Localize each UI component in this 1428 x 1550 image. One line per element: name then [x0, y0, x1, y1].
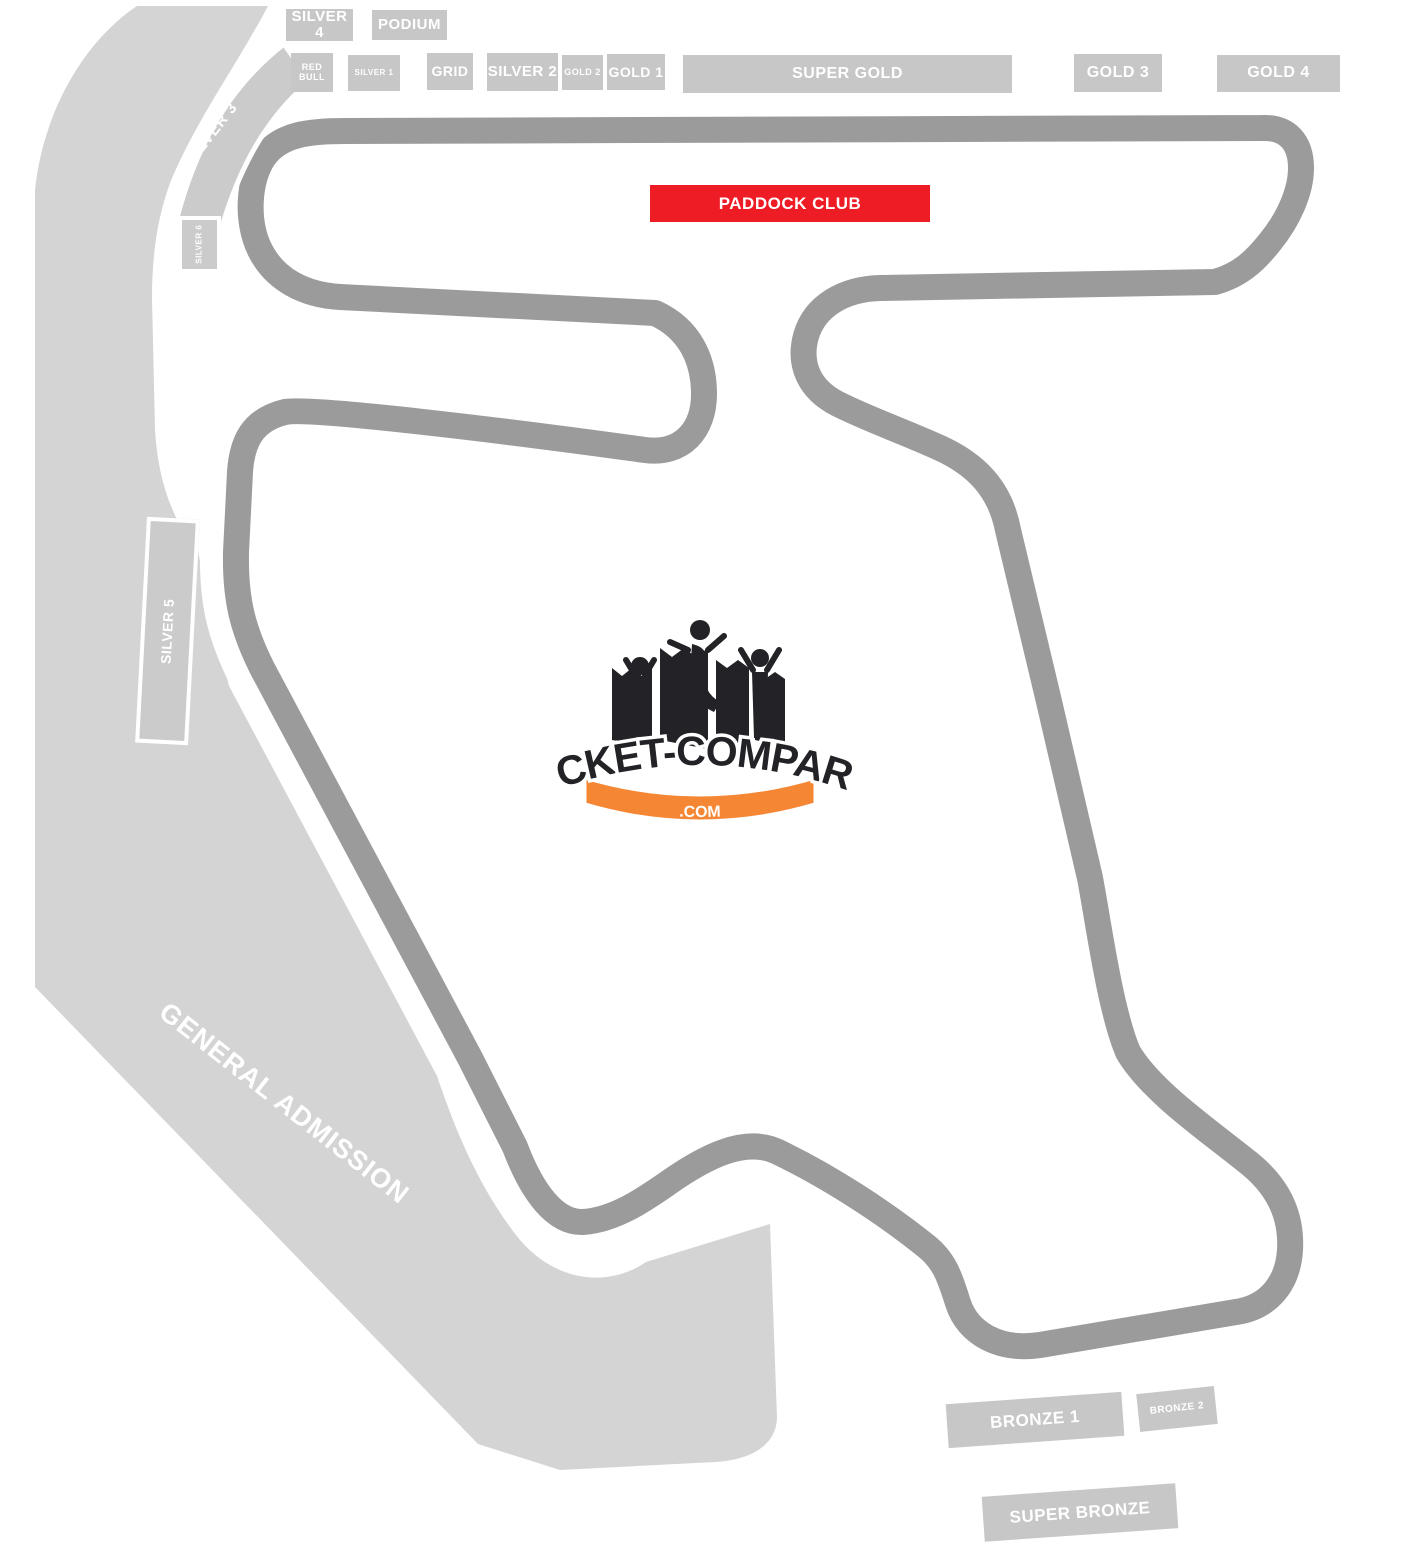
stand-silver2[interactable]: SILVER 2: [487, 53, 558, 91]
stand-gold3[interactable]: GOLD 3: [1074, 54, 1162, 92]
circuit-seating-map: TICKET-COMPARE .COM SILVER 4 PODIUM RED …: [0, 0, 1428, 1550]
stand-gold1[interactable]: GOLD 1: [607, 54, 665, 90]
stand-red-bull[interactable]: RED BULL: [291, 53, 333, 92]
stand-paddock-club[interactable]: PADDOCK CLUB: [650, 185, 930, 222]
stand-gold2[interactable]: GOLD 2: [562, 55, 603, 90]
stand-grid[interactable]: GRID: [427, 53, 473, 90]
stand-silver6[interactable]: SILVER 6: [178, 216, 221, 273]
stand-silver4[interactable]: SILVER 4: [286, 9, 353, 41]
stand-silver6-label: SILVER 6: [195, 225, 203, 264]
logo-domain: .COM: [679, 803, 721, 821]
soccer-ball-icon: [669, 709, 683, 723]
stand-silver1[interactable]: SILVER 1: [348, 55, 400, 91]
stand-podium[interactable]: PODIUM: [372, 10, 447, 40]
stand-silver5-label: SILVER 5: [158, 598, 176, 664]
stand-bronze2[interactable]: BRONZE 2: [1136, 1386, 1218, 1432]
stand-super-gold[interactable]: SUPER GOLD: [683, 55, 1012, 93]
stand-gold4[interactable]: GOLD 4: [1217, 55, 1340, 92]
